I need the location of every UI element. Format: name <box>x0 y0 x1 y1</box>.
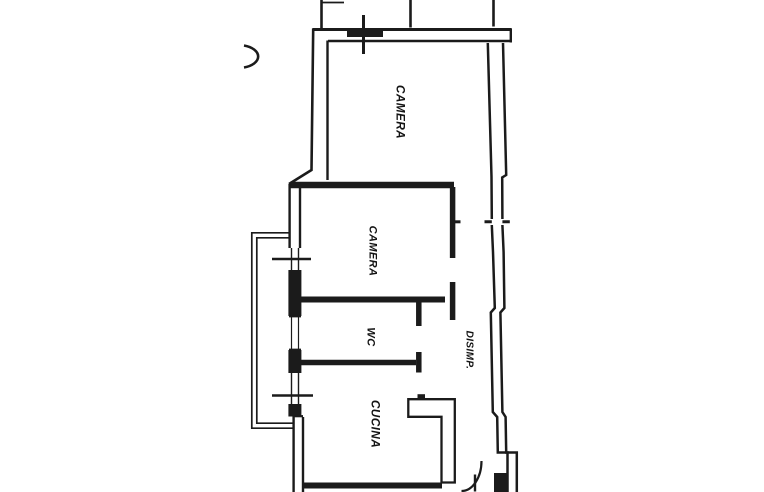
hook-bump <box>418 394 426 399</box>
door-swing-arc <box>462 461 482 491</box>
right-exterior-wall <box>485 43 517 492</box>
right-wall-footing <box>494 473 508 492</box>
stray-arc <box>244 46 258 68</box>
interior-partitions <box>301 187 461 373</box>
room-labels: CAMERA CAMERA WC DISIMP. CUCINA <box>365 85 475 448</box>
room-label-camera-2: CAMERA <box>367 226 379 277</box>
room-label-cucina: CUCINA <box>369 400 383 448</box>
room-label-camera-1: CAMERA <box>394 85 408 139</box>
top-exterior-wall <box>313 15 512 54</box>
top-edge-stubs <box>322 0 494 28</box>
entrance-door <box>462 461 482 492</box>
floor-plan-drawing: CAMERA CAMERA WC DISIMP. CUCINA <box>0 0 764 492</box>
floor-plan-page: CAMERA CAMERA WC DISIMP. CUCINA <box>0 0 764 492</box>
cucina-hook-wall <box>408 394 455 482</box>
camera1-left-wall <box>289 29 328 185</box>
room-label-wc: WC <box>365 327 377 347</box>
room-label-disimp: DISIMP. <box>464 331 475 370</box>
left-exterior-wall <box>272 184 313 492</box>
balcony <box>252 233 294 428</box>
